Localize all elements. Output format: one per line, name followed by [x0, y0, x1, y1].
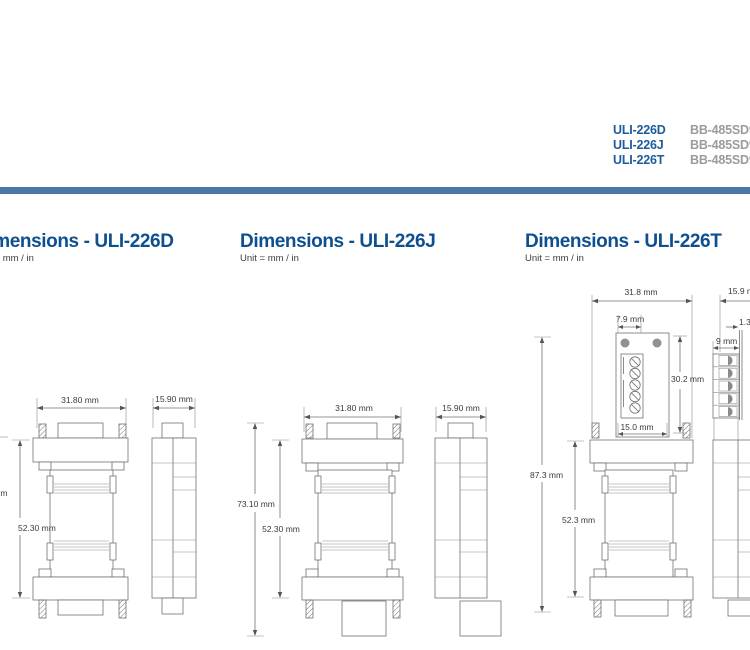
- dim-front-width-label: 31.80 mm: [335, 403, 373, 413]
- dim-overall-height-label: 73.10 mm: [237, 499, 275, 509]
- table-row: ULI-226DBB-485SD9: [613, 123, 750, 138]
- mounting-hole: [621, 339, 630, 348]
- legacy-model-name: BB-485SD9: [690, 138, 750, 152]
- table-row: ULI-226JBB-485SD9: [613, 138, 750, 153]
- dim-overall-height-label: 87.3 mm: [530, 470, 563, 480]
- product-model-table: ULI-226DBB-485SD9 ULI-226JBB-485SD9 ULI-…: [613, 123, 750, 168]
- side-view-drawing: 15.90 mm: [435, 403, 501, 636]
- dim-side-width-label: 15.90 mm: [155, 394, 193, 404]
- section-title: Dimensions - ULI-226J: [240, 231, 435, 252]
- model-name: ULI-226J: [613, 138, 690, 153]
- front-view-drawing: 31.80 mm 52: [0, 395, 128, 618]
- datasheet-page: ULI-226DBB-485SD9 ULI-226JBB-485SD9 ULI-…: [0, 0, 750, 650]
- section-title: Dimensions - ULI-226T: [525, 231, 721, 252]
- terminal-screws: [630, 357, 640, 413]
- dim-body-height-label: 52.3 mm: [562, 515, 595, 525]
- section-header-uli226j: Dimensions - ULI-226J Unit = mm / in: [240, 231, 435, 264]
- legacy-model-name: BB-485SD9: [690, 153, 750, 167]
- terminal-block-side: [713, 354, 739, 418]
- dim-side-width-label: 15.9 mm: [728, 286, 750, 296]
- dim-plate-thickness-label: 1.3: [739, 317, 750, 327]
- section-header-uli226t: Dimensions - ULI-226T Unit = mm / in: [525, 231, 721, 264]
- dim-terminal-height-label: 30.2 mm: [671, 374, 704, 384]
- top-view-drawing: 31.8 mm 7.9 mm 30.2 mm: [592, 287, 704, 438]
- unit-note: Unit = mm / in: [525, 253, 721, 264]
- legacy-model-name: BB-485SD9: [690, 123, 750, 137]
- divider-rule: [0, 187, 750, 194]
- dim-tab-width-label: 7.9 mm: [616, 314, 644, 324]
- terminal-box: [342, 601, 386, 636]
- dimension-drawing-uli226j: 31.80 mm 73: [230, 388, 510, 650]
- unit-note: Unit = mm / in: [240, 253, 435, 264]
- side-view-drawing: 15.9 mm 1.3 9 mm: [713, 286, 750, 616]
- dim-side-width-label: 15.90 mm: [442, 403, 480, 413]
- dim-front-width-label: 31.8 mm: [624, 287, 657, 297]
- dimension-drawing-uli226d: 31.80 mm 52: [0, 388, 230, 650]
- section-title: Dimensions - ULI-226D: [0, 231, 174, 252]
- model-name: ULI-226T: [613, 153, 690, 168]
- section-header-uli226d: Dimensions - ULI-226D Unit = mm / in: [0, 231, 174, 264]
- dim-body-height-label: 52.30 mm: [18, 523, 56, 533]
- model-name: ULI-226D: [613, 123, 690, 138]
- dim-overall-height-label-clipped: m: [0, 488, 7, 498]
- front-view-drawing: 31.80 mm 73: [237, 403, 403, 636]
- table-row: ULI-226TBB-485SD9: [613, 153, 750, 168]
- dimension-drawing-uli226t: 31.8 mm 7.9 mm 30.2 mm: [520, 283, 750, 650]
- dim-terminal-width-label: 15.0 mm: [620, 422, 653, 432]
- dim-front-width-label: 31.80 mm: [61, 395, 99, 405]
- mounting-hole: [653, 339, 662, 348]
- dim-side-depth-label: 9 mm: [716, 336, 737, 346]
- side-view-drawing: 15.90 mm: [152, 394, 196, 614]
- unit-note: Unit = mm / in: [0, 253, 174, 264]
- dim-body-height-label: 52.30 mm: [262, 524, 300, 534]
